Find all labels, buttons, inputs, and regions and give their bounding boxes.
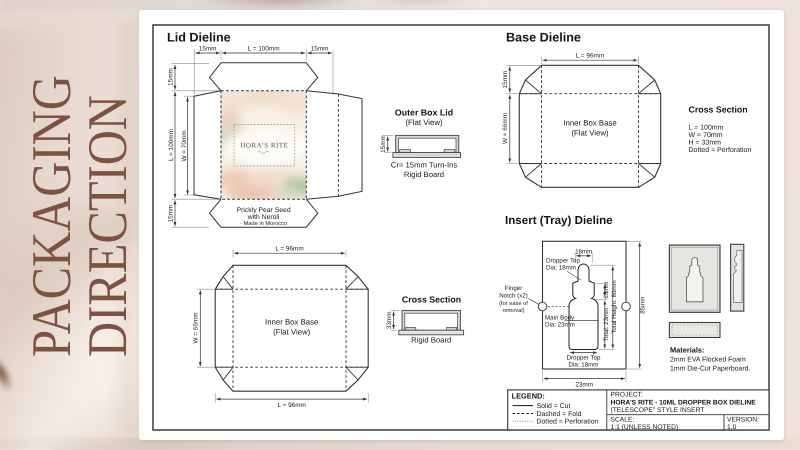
svg-text:Main Body: Main Body [545,315,575,322]
svg-text:Finger: Finger [505,285,523,292]
svg-text:1.0: 1.0 [727,424,737,431]
svg-text:HORA’S RITE - 10ML DROPPER BOX: HORA’S RITE - 10ML DROPPER BOX DIELINE [611,399,757,406]
svg-text:Total: 23mm: Total: 23mm [603,308,610,342]
svg-text:(Flat View): (Flat View) [273,328,311,337]
svg-text:1:1 (UNLESS NOTED): 1:1 (UNLESS NOTED) [611,424,679,431]
svg-text:Notch (x2): Notch (x2) [499,293,528,300]
svg-text:DIRECTION: DIRECTION [77,95,139,357]
svg-text:(Flat View): (Flat View) [571,129,609,138]
svg-text:Outer Box Lid: Outer Box Lid [395,108,453,118]
svg-text:Dia: 23mm: Dia: 23mm [545,322,575,329]
svg-text:1mm Die-Cut Paperboard.: 1mm Die-Cut Paperboard. [670,365,751,372]
svg-text:Inner Box Base: Inner Box Base [563,119,616,128]
svg-text:Lid Dieline: Lid Dieline [167,31,231,45]
svg-text:Insert (Tray) Dieline: Insert (Tray) Dieline [505,214,613,227]
svg-text:15mm: 15mm [199,46,217,53]
svg-text:L = 96mm: L = 96mm [576,53,604,60]
svg-text:15mm: 15mm [167,205,174,223]
svg-text:Dropper Top: Dropper Top [546,258,580,265]
svg-text:PACKAGING: PACKAGING [21,75,83,357]
svg-text:Rigid Board: Rigid Board [404,170,444,179]
svg-text:15mm: 15mm [167,68,174,86]
svg-text:H = 33mm: H = 33mm [689,139,722,146]
svg-text:W = 70mm: W = 70mm [181,130,188,161]
svg-text:15mm: 15mm [311,46,329,53]
svg-text:(Flat View): (Flat View) [405,118,443,127]
svg-text:Materials:: Materials: [670,346,705,355]
svg-text:2mm EVA Flocked Foam: 2mm EVA Flocked Foam [670,356,746,363]
svg-text:Dotted = Perforation: Dotted = Perforation [689,146,752,154]
svg-text:Solid = Cut: Solid = Cut [537,403,571,410]
svg-text:HORA’S RITE: HORA’S RITE [240,142,288,150]
svg-text:15mm: 15mm [380,135,387,153]
svg-text:VERSION:: VERSION: [727,416,759,423]
svg-text:(for ease of: (for ease of [499,300,528,307]
svg-text:L = 96mm: L = 96mm [278,402,306,409]
svg-text:85mm: 85mm [640,297,647,314]
svg-text:18mm: 18mm [575,249,592,256]
svg-text:Dashed = Fold: Dashed = Fold [537,411,582,418]
svg-text:Base Dieline: Base Dieline [506,31,581,45]
svg-text:L = 96mm: L = 96mm [275,246,303,253]
svg-text:33mm: 33mm [386,311,393,329]
svg-text:L = 100mm: L = 100mm [689,124,724,131]
svg-text:Dotted = Perforation: Dotted = Perforation [537,419,599,426]
svg-text:PROJECT:: PROJECT: [611,391,643,398]
svg-text:Total Height: 80mm: Total Height: 80mm [611,280,618,333]
svg-text:Prickly Pear Seed: Prickly Pear Seed [237,207,291,214]
svg-text:Cr= 15mm Turn-Ins: Cr= 15mm Turn-Ins [391,161,458,170]
svg-text:SCALE:: SCALE: [611,416,635,423]
svg-text:removal): removal) [502,307,524,314]
svg-text:15mm: 15mm [502,71,509,89]
svg-text:(TELESCOPE” STYLE INSERT: (TELESCOPE” STYLE INSERT [611,407,705,414]
svg-text:Rigid Board: Rigid Board [411,336,451,345]
svg-text:L = 100mm: L = 100mm [248,46,280,53]
svg-text:LEGEND:: LEGEND: [512,392,545,401]
svg-text:Cross Section: Cross Section [689,105,748,115]
svg-text:W = 66mm: W = 66mm [193,312,200,343]
svg-text:Dia: 18mm: Dia: 18mm [546,265,576,272]
svg-text:23mm: 23mm [575,381,593,388]
svg-text:Dia: 18mm: Dia: 18mm [569,361,599,368]
svg-text:W = 66mm: W = 66mm [502,113,509,144]
svg-text:Cross Section: Cross Section [402,295,461,305]
svg-text:63mm: 63mm [603,282,610,299]
svg-text:W = 70mm: W = 70mm [689,132,723,139]
svg-text:· Made in Morocco: · Made in Morocco [240,220,287,227]
svg-text:L = 100mm: L = 100mm [168,129,175,161]
svg-text:with Neroli: with Neroli [247,214,280,221]
svg-text:Inner Box Base: Inner Box Base [265,318,318,327]
svg-text:Dropper Top: Dropper Top [567,354,601,361]
